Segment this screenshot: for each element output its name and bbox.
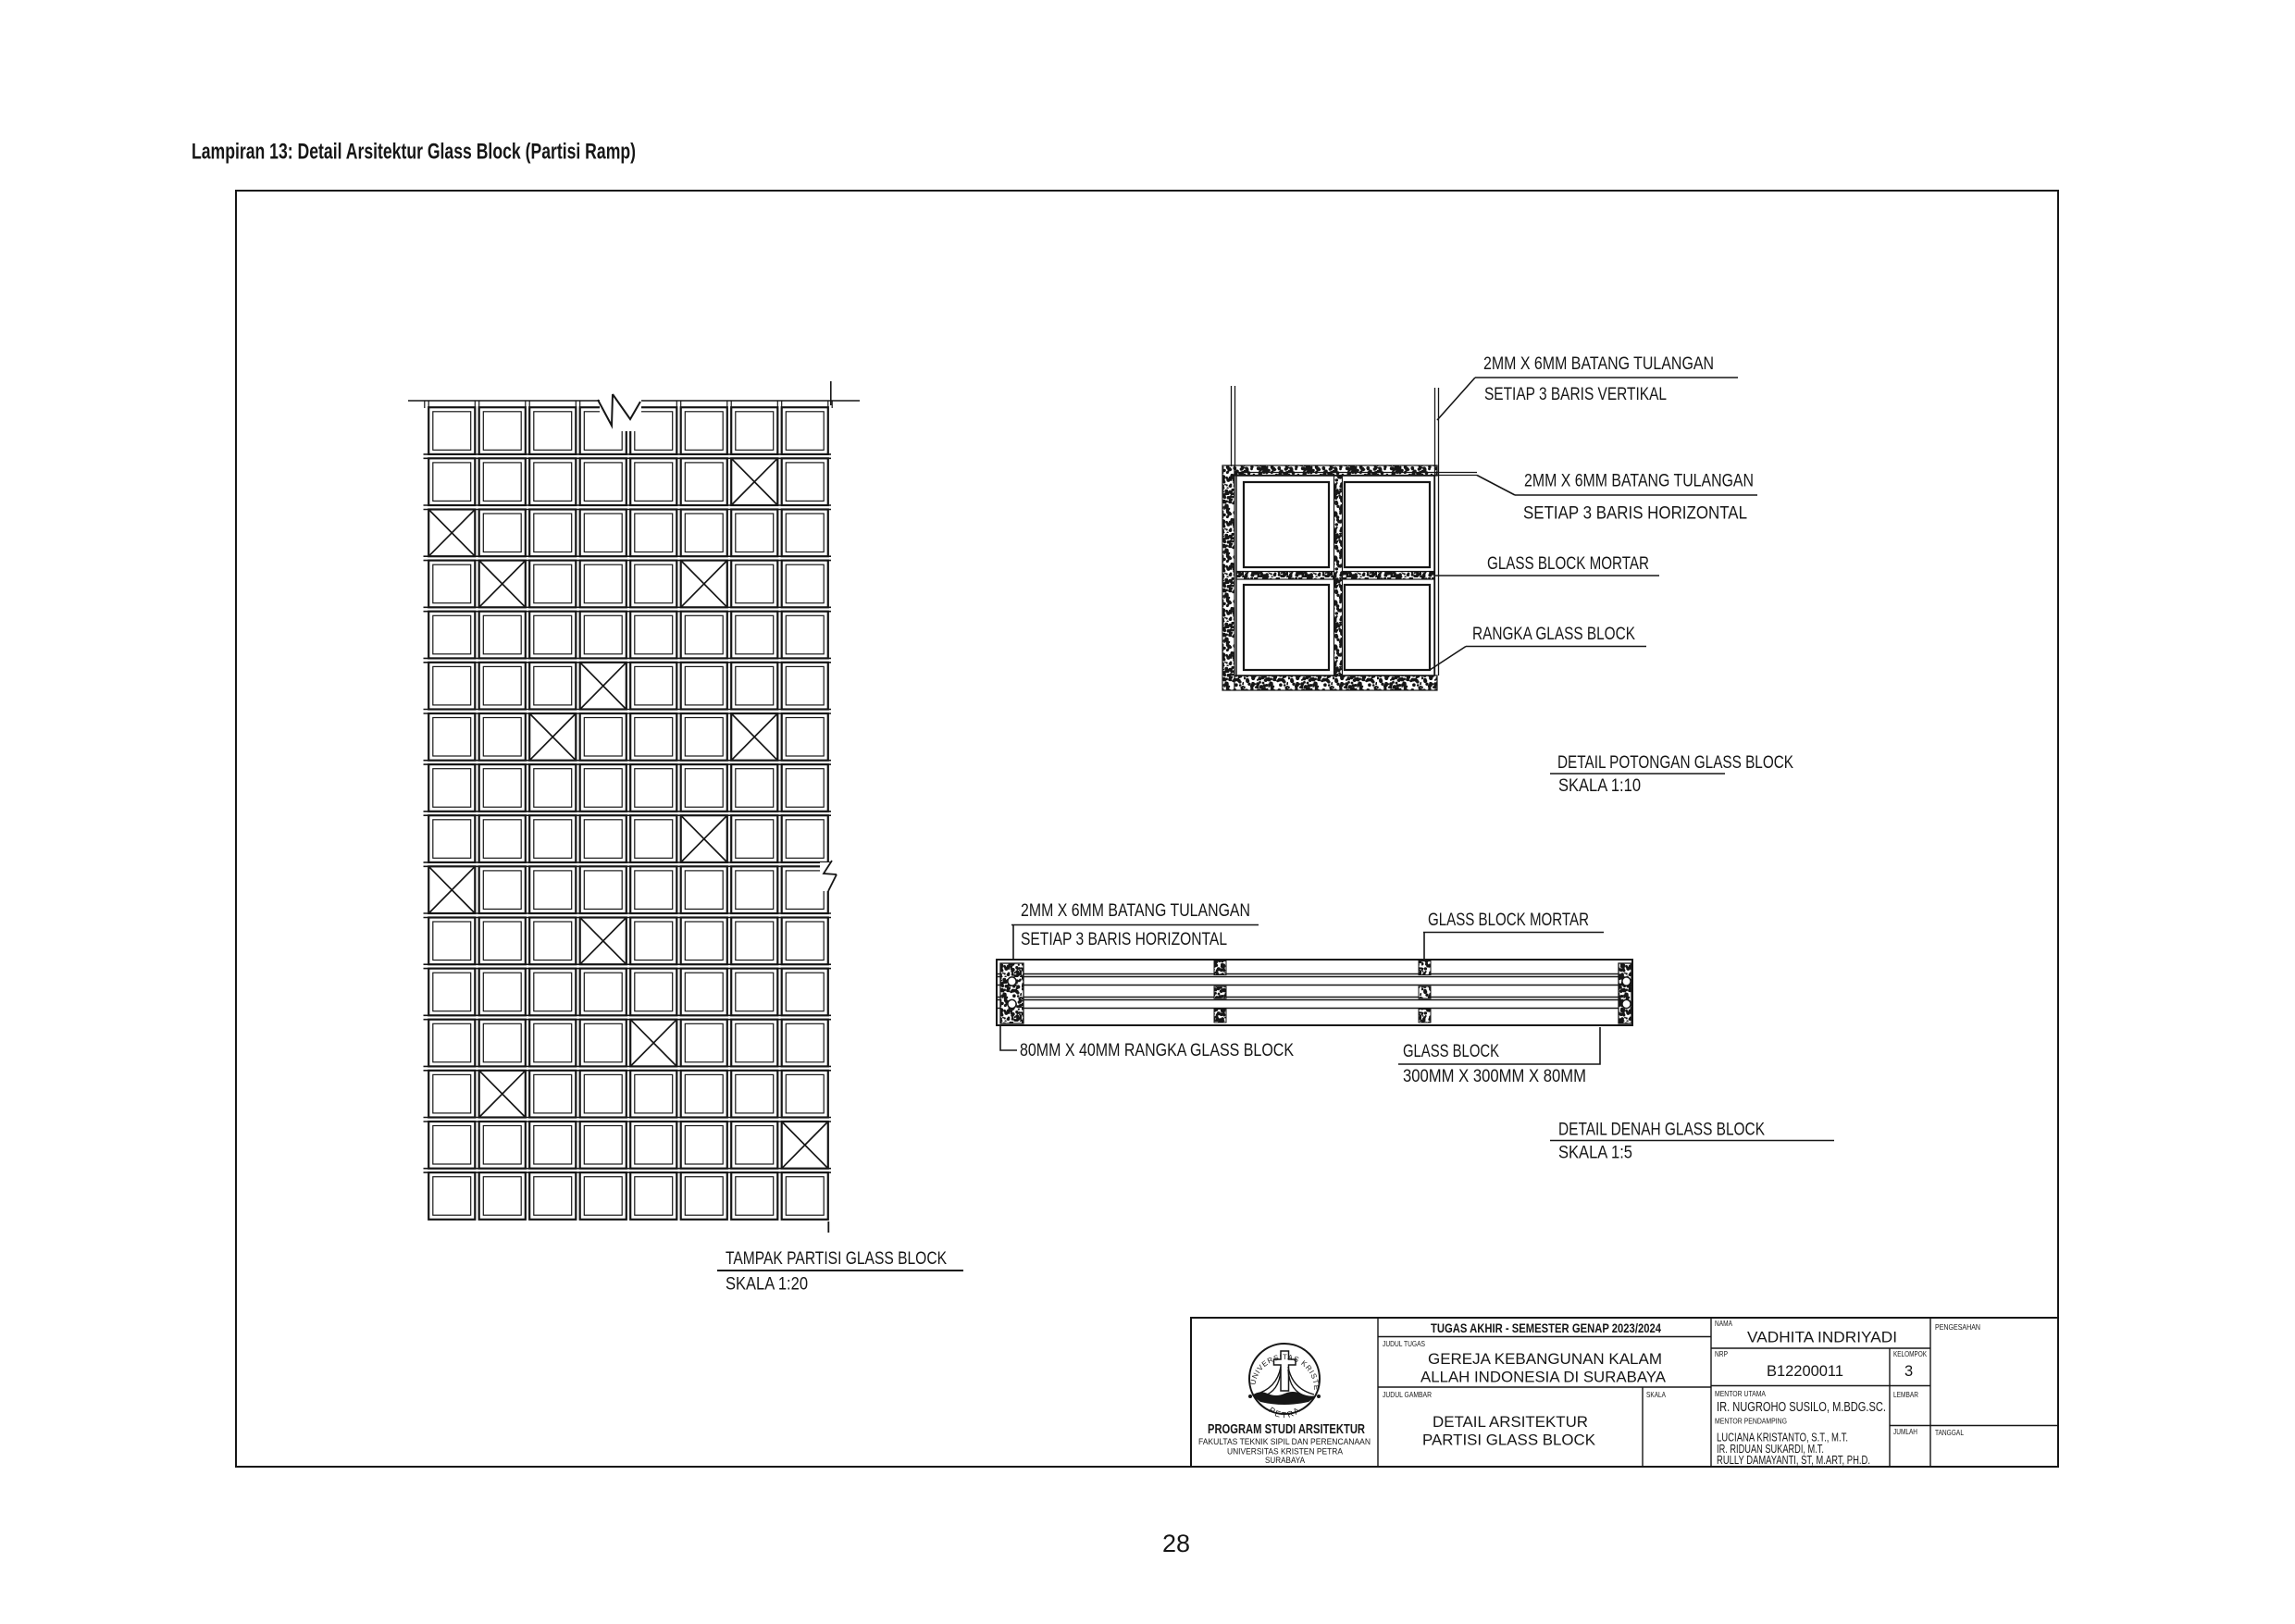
svg-text:GLASS BLOCK MORTAR: GLASS BLOCK MORTAR xyxy=(1428,911,1589,930)
svg-text:FAKULTAS TEKNIK SIPIL DAN PERE: FAKULTAS TEKNIK SIPIL DAN PERENCANAAN xyxy=(1198,1437,1371,1447)
svg-text:DETAIL POTONGAN GLASS BLOCK: DETAIL POTONGAN GLASS BLOCK xyxy=(1557,753,1793,773)
svg-text:RANGKA GLASS BLOCK: RANGKA GLASS BLOCK xyxy=(1472,625,1635,644)
svg-text:SKALA 1:10: SKALA 1:10 xyxy=(1558,776,1641,796)
svg-text:RULLY DAMAYANTI, ST, M.ART, PH: RULLY DAMAYANTI, ST, M.ART, PH.D. xyxy=(1717,1453,1870,1467)
svg-text:SETIAP 3 BARIS HORIZONTAL: SETIAP 3 BARIS HORIZONTAL xyxy=(1523,504,1747,524)
svg-text:NRP: NRP xyxy=(1715,1349,1728,1358)
svg-text:JUDUL GAMBAR: JUDUL GAMBAR xyxy=(1383,1390,1432,1399)
svg-text:SETIAP 3 BARIS VERTIKAL: SETIAP 3 BARIS VERTIKAL xyxy=(1484,385,1667,404)
svg-text:DETAIL DENAH GLASS BLOCK: DETAIL DENAH GLASS BLOCK xyxy=(1558,1121,1765,1140)
svg-text:ALLAH INDONESIA DI SURABAYA: ALLAH INDONESIA DI SURABAYA xyxy=(1420,1370,1666,1386)
svg-text:GLASS BLOCK: GLASS BLOCK xyxy=(1403,1042,1499,1061)
svg-text:IR. NUGROHO SUSILO, M.BDG.SC.: IR. NUGROHO SUSILO, M.BDG.SC. xyxy=(1717,1400,1886,1415)
svg-text:JUMLAH: JUMLAH xyxy=(1893,1427,1917,1436)
svg-text:MENTOR UTAMA: MENTOR UTAMA xyxy=(1715,1389,1766,1398)
svg-text:SURABAYA: SURABAYA xyxy=(1265,1456,1306,1466)
svg-text:DETAIL ARSITEKTUR: DETAIL ARSITEKTUR xyxy=(1433,1414,1588,1431)
svg-text:SKALA 1:5: SKALA 1:5 xyxy=(1558,1144,1632,1163)
svg-text:28: 28 xyxy=(1162,1530,1190,1557)
svg-text:B12200011: B12200011 xyxy=(1767,1363,1843,1380)
svg-text:PARTISI GLASS BLOCK: PARTISI GLASS BLOCK xyxy=(1422,1432,1595,1449)
svg-text:NAMA: NAMA xyxy=(1715,1319,1732,1328)
svg-text:SKALA 1:20: SKALA 1:20 xyxy=(726,1275,808,1295)
svg-text:JUDUL TUGAS: JUDUL TUGAS xyxy=(1383,1339,1425,1348)
svg-text:VADHITA INDRIYADI: VADHITA INDRIYADI xyxy=(1747,1330,1897,1346)
svg-text:GLASS BLOCK MORTAR: GLASS BLOCK MORTAR xyxy=(1487,554,1649,574)
svg-text:MENTOR PENDAMPING: MENTOR PENDAMPING xyxy=(1715,1417,1787,1426)
svg-text:Lampiran 13: Detail Arsitektur: Lampiran 13: Detail Arsitektur Glass Blo… xyxy=(192,140,636,165)
svg-text:LEMBAR: LEMBAR xyxy=(1893,1390,1918,1399)
svg-text:2MM X 6MM BATANG TULANGAN: 2MM X 6MM BATANG TULANGAN xyxy=(1483,354,1714,374)
svg-text:SETIAP 3 BARIS HORIZONTAL: SETIAP 3 BARIS HORIZONTAL xyxy=(1021,930,1227,949)
svg-text:SKALA: SKALA xyxy=(1646,1390,1666,1399)
svg-text:PENGESAHAN: PENGESAHAN xyxy=(1935,1322,1980,1332)
svg-text:TAMPAK PARTISI GLASS BLOCK: TAMPAK PARTISI GLASS BLOCK xyxy=(726,1249,947,1269)
svg-text:2MM X 6MM BATANG TULANGAN: 2MM X 6MM BATANG TULANGAN xyxy=(1021,901,1250,921)
svg-text:KELOMPOK: KELOMPOK xyxy=(1893,1349,1927,1358)
svg-text:300MM X 300MM X 80MM: 300MM X 300MM X 80MM xyxy=(1403,1067,1586,1086)
svg-text:TANGGAL: TANGGAL xyxy=(1935,1428,1964,1437)
svg-text:TUGAS AKHIR - SEMESTER GENAP 2: TUGAS AKHIR - SEMESTER GENAP 2023/2024 xyxy=(1431,1320,1661,1335)
svg-text:80MM X 40MM RANGKA GLASS: 80MM X 40MM RANGKA GLASS BLOCK xyxy=(1020,1041,1294,1060)
svg-text:GEREJA KEBANGUNAN KALAM: GEREJA KEBANGUNAN KALAM xyxy=(1428,1351,1662,1368)
svg-text:3: 3 xyxy=(1904,1363,1913,1380)
svg-text:2MM X 6MM BATANG TULANGAN: 2MM X 6MM BATANG TULANGAN xyxy=(1524,472,1754,491)
svg-text:PROGRAM STUDI ARSITEKTUR: PROGRAM STUDI ARSITEKTUR xyxy=(1208,1422,1365,1437)
